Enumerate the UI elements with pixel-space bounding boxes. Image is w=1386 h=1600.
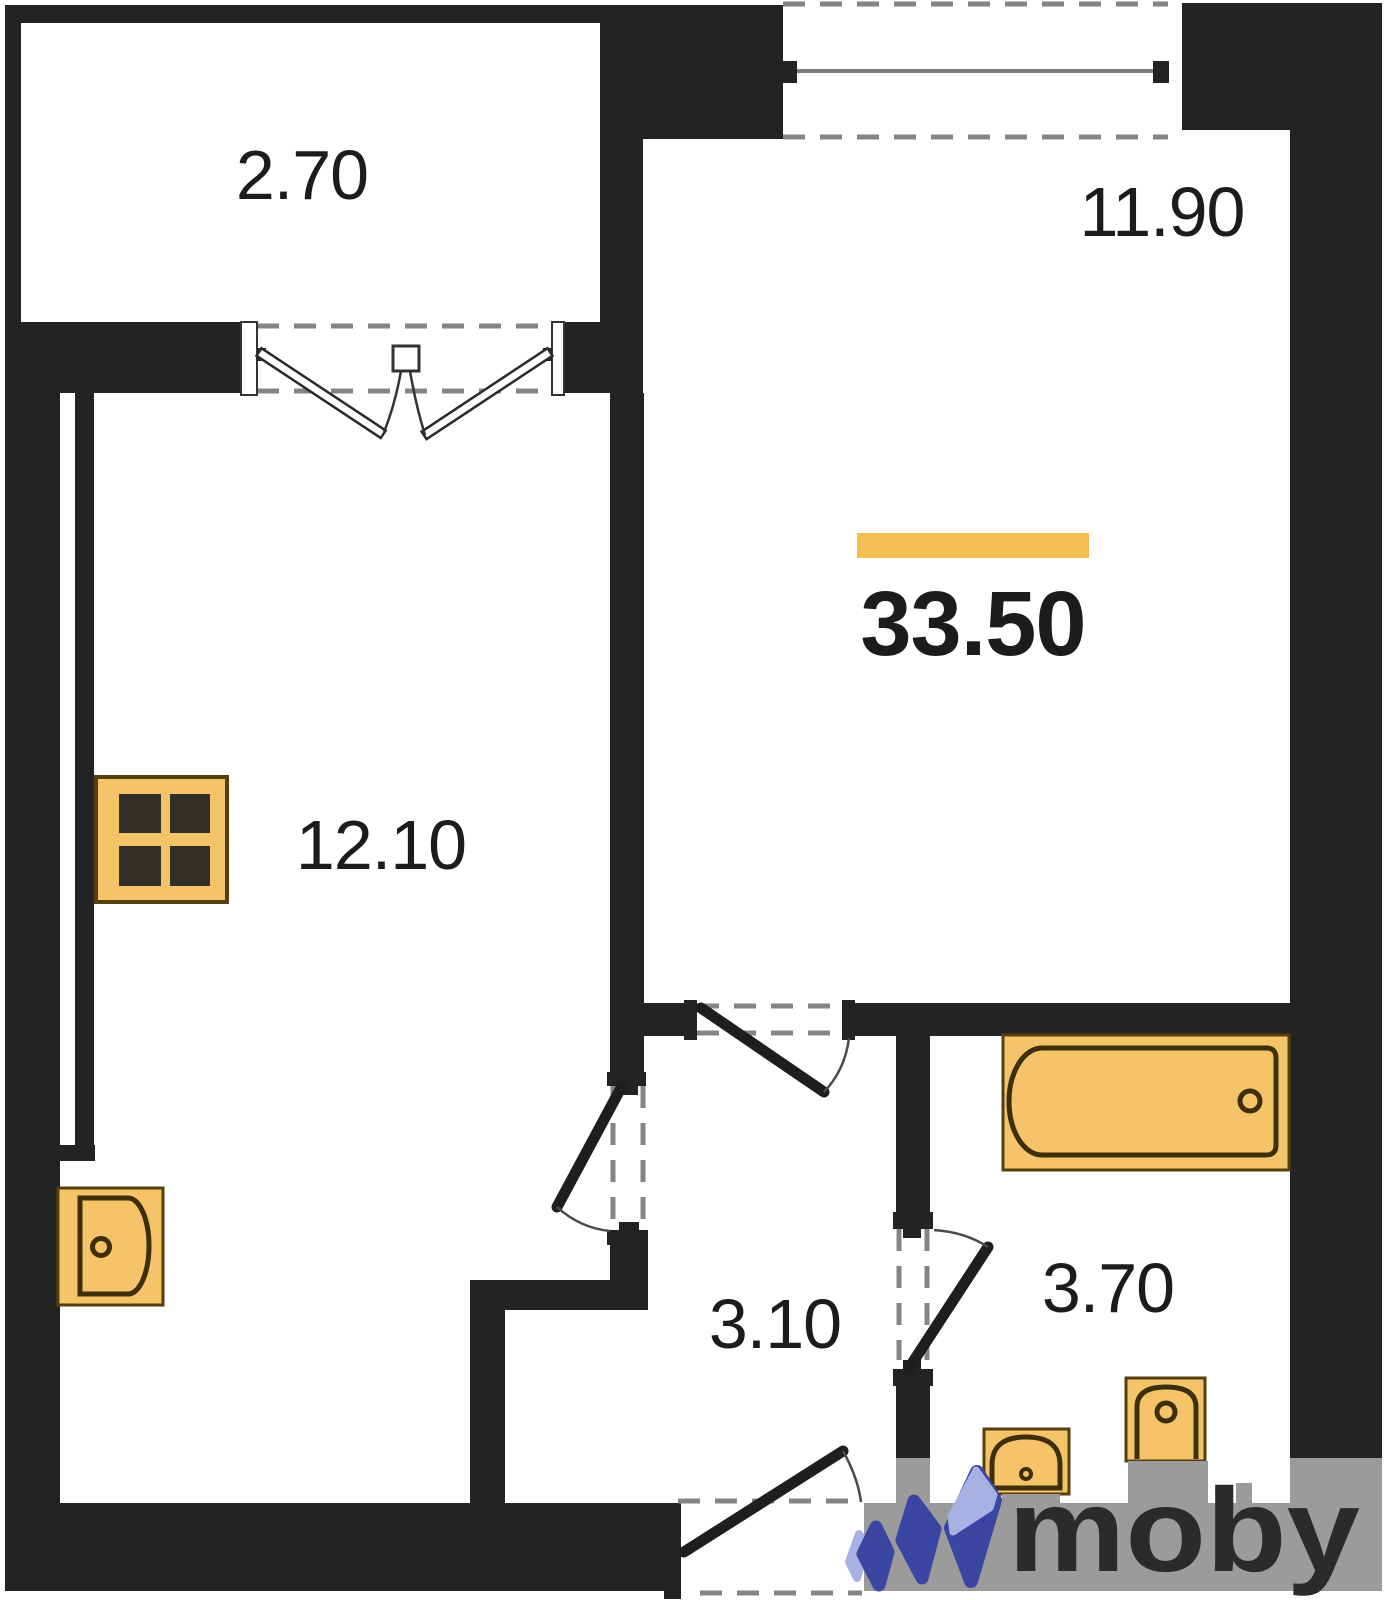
svg-text:12.10: 12.10 (296, 806, 466, 884)
svg-text:3.70: 3.70 (1042, 1249, 1174, 1327)
svg-text:33.50: 33.50 (860, 573, 1085, 675)
svg-text:11.90: 11.90 (1080, 173, 1245, 251)
svg-text:moby: moby (1008, 1464, 1360, 1597)
svg-text:2.70: 2.70 (236, 136, 368, 214)
svg-text:3.10: 3.10 (709, 1285, 841, 1363)
